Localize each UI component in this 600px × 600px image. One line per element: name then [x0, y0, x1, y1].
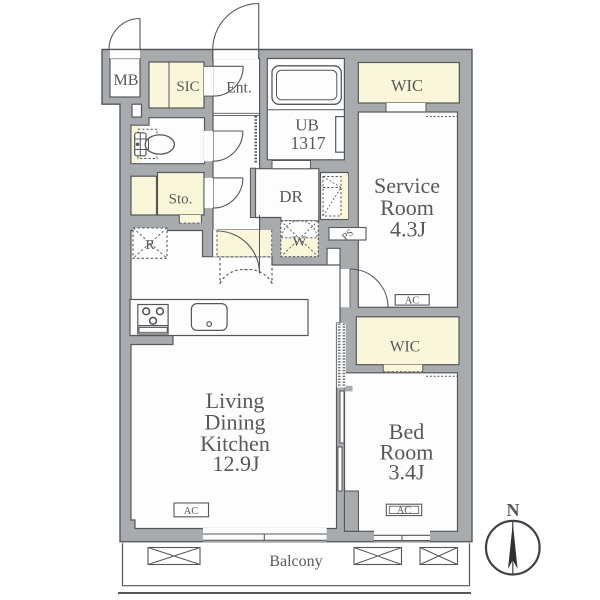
svg-text:3.4J: 3.4J [388, 460, 425, 485]
svg-text:1317: 1317 [291, 133, 326, 153]
svg-text:WIC: WIC [390, 339, 420, 356]
svg-text:Balcony: Balcony [269, 553, 322, 570]
svg-text:12.9J: 12.9J [212, 451, 260, 476]
svg-text:MB: MB [114, 72, 139, 89]
svg-text:WIC: WIC [391, 76, 423, 95]
svg-text:N: N [507, 500, 520, 520]
svg-text:4.3J: 4.3J [390, 217, 427, 242]
svg-text:R: R [145, 238, 155, 253]
svg-text:AC: AC [405, 296, 420, 307]
svg-text:AC: AC [397, 505, 412, 516]
svg-text:UB: UB [295, 116, 319, 135]
svg-text:SIC: SIC [176, 79, 199, 95]
svg-text:W: W [292, 234, 307, 250]
svg-text:Sto.: Sto. [169, 192, 193, 208]
svg-text:AC: AC [184, 506, 199, 517]
svg-text:DR: DR [279, 187, 303, 206]
